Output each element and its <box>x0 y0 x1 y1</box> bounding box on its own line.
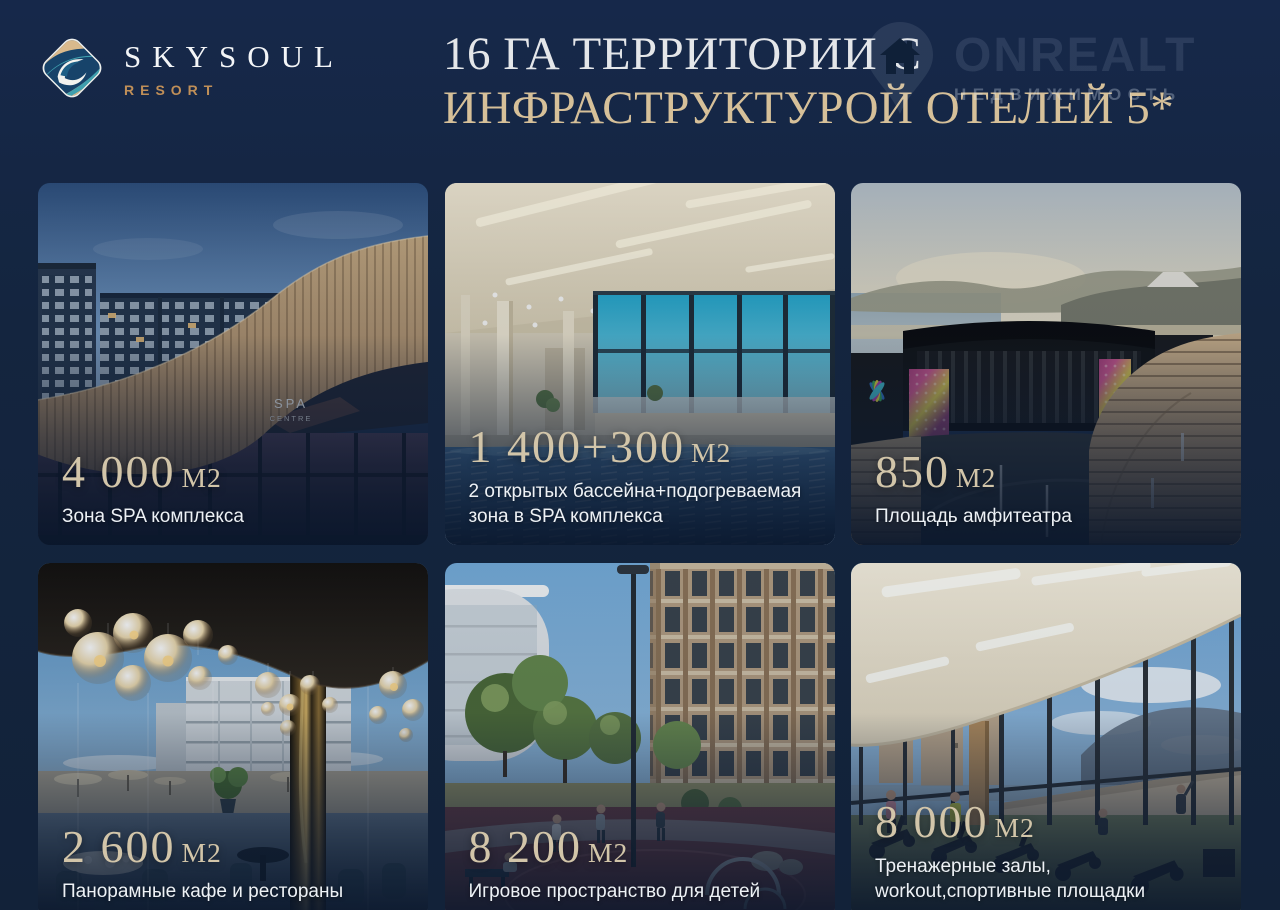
card-caption: 2 открытых бассейна+подогреваемая зона в… <box>469 479 811 529</box>
area-value: 2 600М2 <box>62 823 404 871</box>
brand-name: SKYSOUL <box>124 39 344 75</box>
skysoul-logo-icon <box>36 32 108 104</box>
area-value: 1 400+300М2 <box>469 423 811 471</box>
card-caption: Панорамные кафе и рестораны <box>62 879 404 904</box>
card-caption: Площадь амфитеатра <box>875 504 1217 529</box>
area-value: 850М2 <box>875 448 1217 496</box>
flyer-page: SKYSOUL RESORT 16 ГА ТЕРРИТОРИИ С ИНФРАС… <box>0 0 1280 910</box>
card-gym: 8 000М2 Тренажерные залы, workout,спорти… <box>851 563 1241 910</box>
card-spa-complex: SPA CENTRE 4 000М2 Зона SPA комплекса <box>38 183 428 545</box>
area-unit: М2 <box>956 462 996 493</box>
cards-grid: SPA CENTRE 4 000М2 Зона SPA комплекса <box>38 183 1241 910</box>
area-unit: М2 <box>995 812 1035 843</box>
area-value: 4 000М2 <box>62 448 404 496</box>
card-cafes: 2 600М2 Панорамные кафе и рестораны <box>38 563 428 910</box>
brand-subtitle: RESORT <box>124 82 344 98</box>
card-caption: Игровое пространство для детей <box>469 879 811 904</box>
card-caption: Тренажерные залы, workout,спортивные пло… <box>875 854 1217 904</box>
card-amphitheater: 850М2 Площадь амфитеатра <box>851 183 1241 545</box>
area-value: 8 200М2 <box>469 823 811 871</box>
brand: SKYSOUL RESORT <box>36 32 344 104</box>
card-caption: Зона SPA комплекса <box>62 504 404 529</box>
watermark-tagline: НЕДВИЖИМОСТЬ <box>954 85 1196 105</box>
area-unit: М2 <box>182 837 222 868</box>
watermark-name: ONREALT <box>954 32 1196 80</box>
card-pools: 1 400+300М2 2 открытых бассейна+подогрев… <box>445 183 835 545</box>
onrealt-watermark: ONREALT НЕДВИЖИМОСТЬ <box>862 22 1196 116</box>
area-unit: М2 <box>182 462 222 493</box>
area-value: 8 000М2 <box>875 798 1217 846</box>
onrealt-pin-icon <box>862 22 938 116</box>
card-playground: 8 200М2 Игровое пространство для детей <box>445 563 835 910</box>
area-unit: М2 <box>588 837 628 868</box>
area-unit: М2 <box>691 437 731 468</box>
